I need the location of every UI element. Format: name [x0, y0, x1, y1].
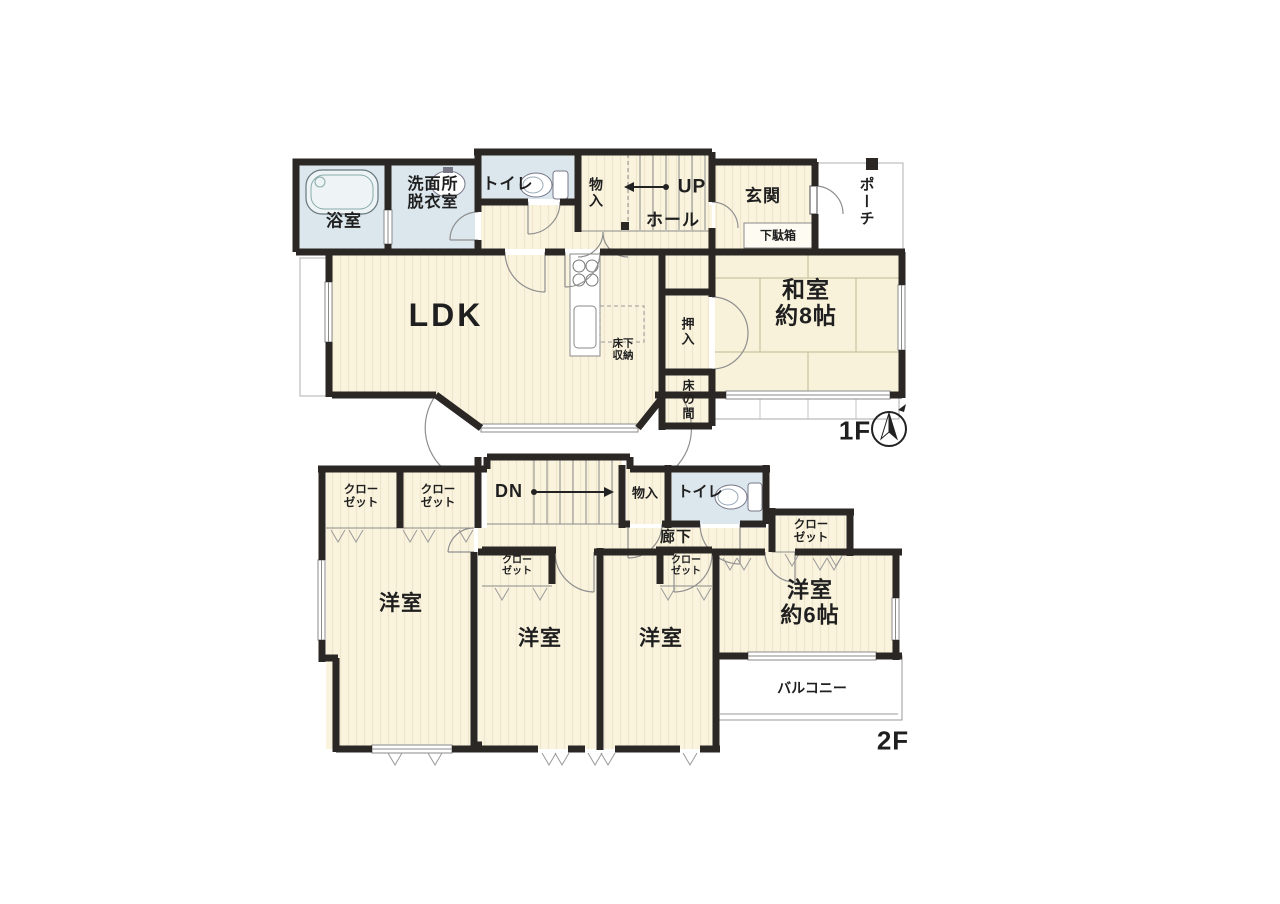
room-label-bathroom: 浴室: [326, 211, 362, 230]
room-label-western-6: 洋室 約6帖: [780, 578, 839, 627]
room-label-ldk: LDK: [409, 298, 484, 334]
label-stairs-down: DN: [495, 481, 523, 501]
room-label-storage-2f: 物入: [632, 487, 658, 502]
room-label-storage-1f: 物入: [589, 177, 603, 209]
label-stairs-up: UP: [678, 176, 706, 197]
room-label-western-mid-2: 洋室: [639, 627, 683, 651]
floor-plan-page: 浴室 洗面所 脱衣室 トイレ 物入 UP ホール 玄関 下駄箱 ポーチ LDK …: [0, 0, 1280, 904]
room-label-hall: ホール: [646, 210, 700, 229]
floor-plan-drawing: [0, 0, 1280, 904]
room-label-japanese-room: 和室 約8帖: [775, 277, 837, 329]
floor1-label: 1F: [839, 416, 871, 445]
room-label-toilet-1f: トイレ: [482, 176, 533, 194]
floor2-label: 2F: [877, 726, 909, 755]
label-shoe-cabinet: 下駄箱: [760, 229, 796, 242]
label-closet-left-1: クロー ゼット: [344, 484, 379, 510]
label-closet-mid-1: クロー ゼット: [502, 555, 532, 577]
room-label-corridor: 廊下: [660, 530, 692, 547]
kitchen-sink-icon: [574, 306, 596, 348]
room-label-toilet-2f: トイレ: [677, 485, 722, 502]
room-label-entrance: 玄関: [745, 186, 781, 205]
label-closet-left-2: クロー ゼット: [421, 484, 456, 510]
room-label-balcony: バルコニー: [777, 681, 847, 697]
label-underfloor-storage: 床下 収納: [613, 338, 634, 362]
label-closet-right: クロー ゼット: [794, 519, 829, 545]
room-label-western-large: 洋室: [379, 592, 423, 616]
room-label-western-mid-1: 洋室: [518, 627, 562, 651]
bathtub-icon: [306, 170, 378, 214]
compass-icon: [872, 404, 906, 446]
room-label-porch: ポーチ: [859, 177, 874, 228]
room-label-tokonoma: 床の間: [682, 379, 694, 421]
label-closet-mid-2: クロー ゼット: [671, 555, 701, 577]
room-label-washroom: 洗面所 脱衣室: [407, 176, 458, 212]
room-label-oshiire: 押入: [681, 317, 694, 347]
